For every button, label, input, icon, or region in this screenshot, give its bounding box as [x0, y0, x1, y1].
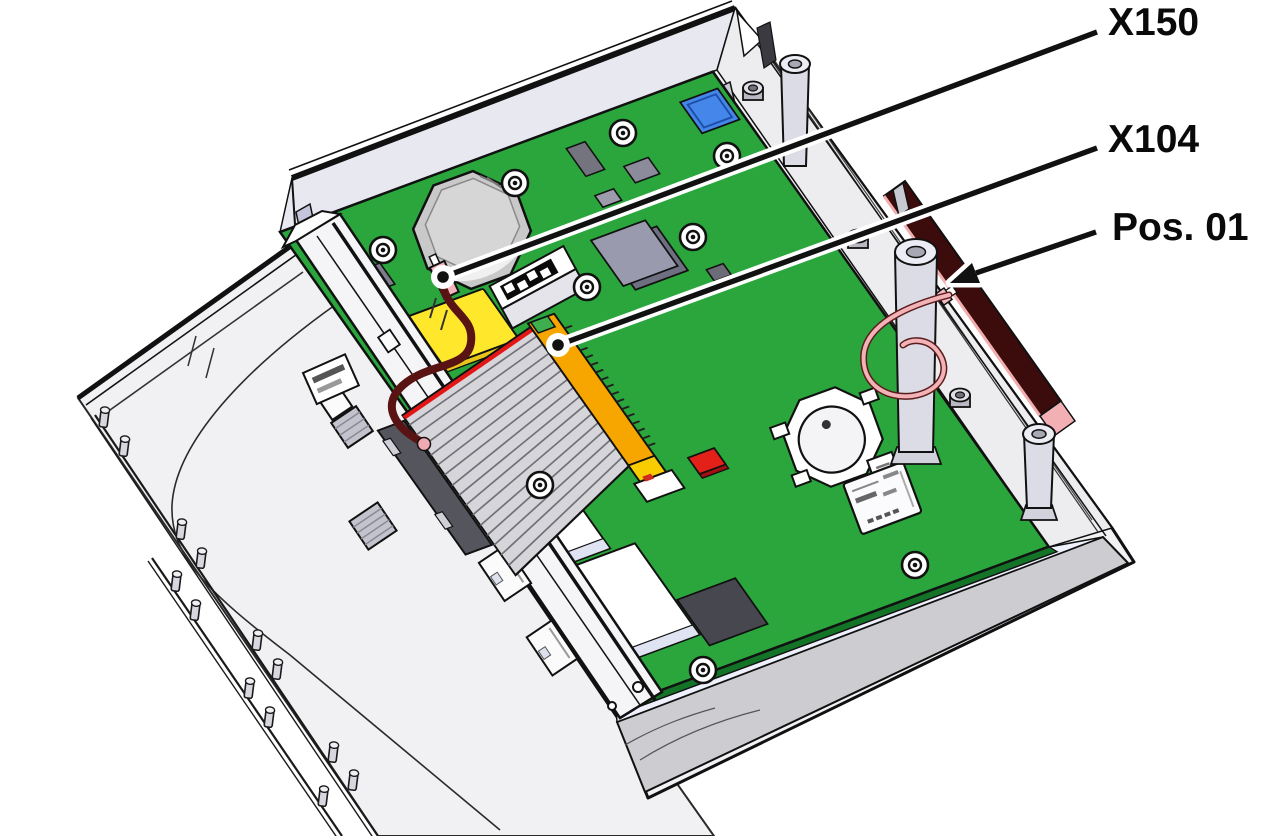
x150-wire-end: [418, 438, 431, 451]
callout-line-pos01: [976, 232, 1096, 273]
x150-endpoint-dot: [437, 271, 449, 283]
diagram-canvas: X150 X104 Pos. 01: [0, 0, 1280, 836]
callout-label-x150: X150: [1108, 1, 1199, 44]
callout-label-x104: X104: [1108, 118, 1199, 161]
callout-label-pos01: Pos. 01: [1112, 206, 1249, 249]
board-hole: [633, 682, 643, 692]
technical-diagram: X150 X104 Pos. 01: [0, 0, 1280, 836]
x104-endpoint-dot: [552, 339, 564, 351]
board-hole: [608, 702, 616, 710]
callout-labels: X150 X104 Pos. 01: [1108, 1, 1249, 249]
standoff-post: [1021, 424, 1057, 520]
